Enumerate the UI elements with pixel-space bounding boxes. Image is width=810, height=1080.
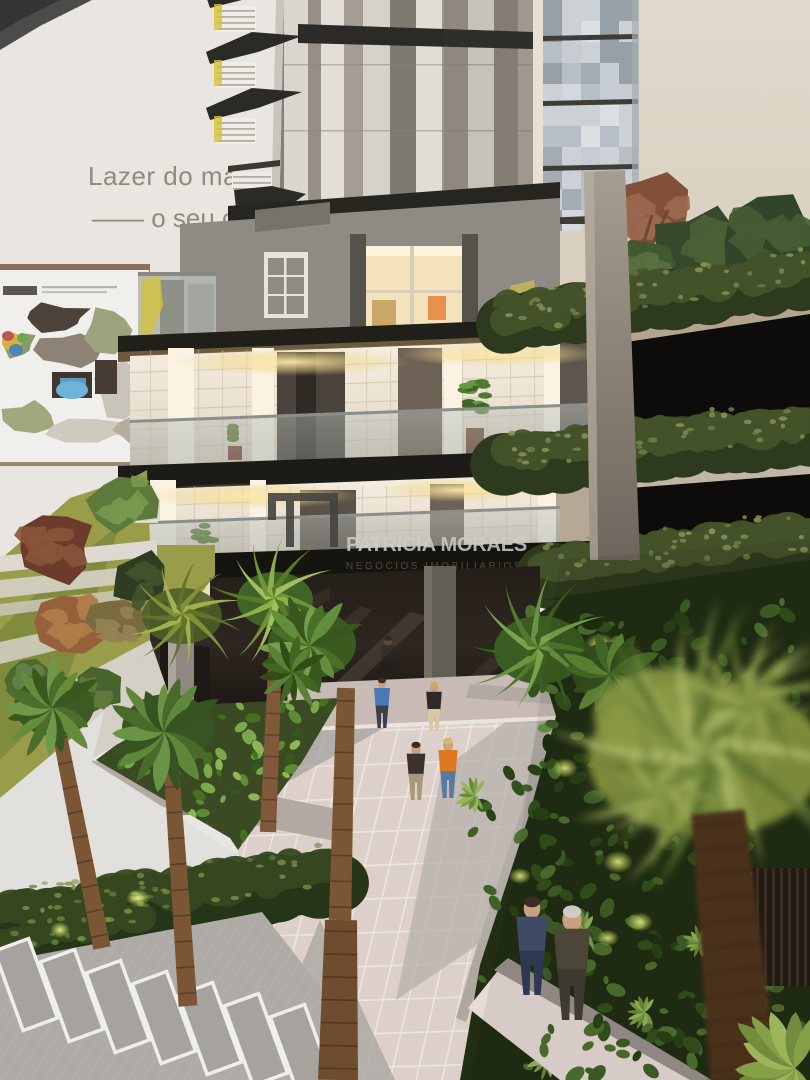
svg-text:PATRICIA MORAES: PATRICIA MORAES — [346, 534, 527, 556]
svg-text:Lazer do ma: Lazer do ma — [88, 161, 238, 191]
